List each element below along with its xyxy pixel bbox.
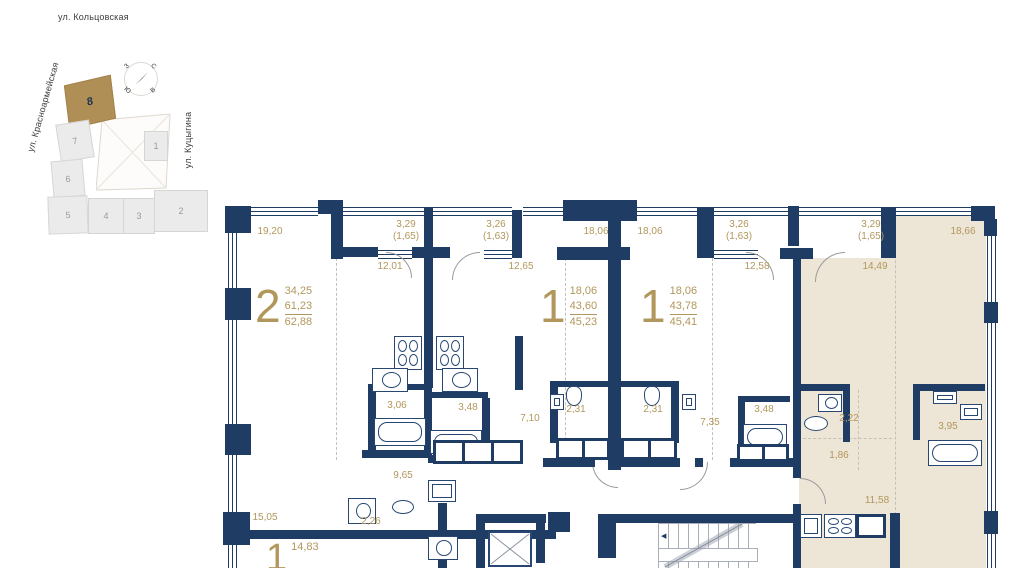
room-area-label: 3,48 [754, 404, 773, 415]
area-total: 62,88 [285, 315, 313, 330]
window [433, 207, 512, 216]
washer-icon [372, 368, 408, 392]
wall [984, 219, 997, 236]
area-main: 61,23 [285, 299, 313, 315]
zone-divider-line [565, 258, 566, 460]
room-area-label: 3,26 [729, 219, 748, 230]
window [251, 207, 318, 216]
rooms-count: 1 [540, 282, 566, 330]
wall [476, 514, 485, 568]
sink-icon [933, 391, 957, 404]
window [714, 207, 788, 216]
sink-icon [550, 394, 564, 410]
wall [697, 207, 714, 258]
sink-icon [428, 480, 456, 502]
window [987, 534, 996, 568]
room-area-label: 7,35 [700, 417, 719, 428]
sink-icon [960, 404, 982, 420]
wall [671, 383, 679, 443]
room-area-label: 7,10 [520, 413, 539, 424]
room-area-label: (1,65) [393, 231, 419, 242]
washer-icon [818, 394, 842, 412]
window [987, 323, 996, 511]
area-living: 18,06 [570, 284, 598, 299]
rooms-count: 2 [255, 282, 281, 330]
wall [362, 450, 430, 458]
cabinet-row [737, 444, 789, 462]
toilet-icon [644, 386, 660, 406]
window [228, 320, 237, 424]
room-area-label: 2,22 [839, 413, 858, 424]
stove-icon [436, 336, 464, 370]
room-area-label: 3,95 [938, 421, 957, 432]
cabinet-row [621, 438, 677, 460]
window [637, 207, 697, 216]
sink-icon [800, 514, 822, 538]
washer-icon [442, 368, 478, 392]
room-area-label: 9,65 [393, 470, 412, 481]
rooms-count: 1 [640, 282, 666, 330]
stair-direction-arrow: ◀ [661, 532, 666, 540]
wall [424, 207, 433, 258]
window [896, 207, 971, 216]
toilet-icon [566, 386, 582, 406]
window [228, 455, 237, 512]
wall [225, 288, 251, 320]
wall [608, 221, 621, 470]
wall [225, 206, 251, 233]
area-total: 45,41 [670, 315, 698, 330]
wall [512, 210, 522, 258]
toilet-icon [804, 416, 828, 431]
toilet-icon [392, 500, 414, 514]
zone-divider-line [858, 390, 859, 470]
door-swing [452, 252, 480, 280]
wall [338, 247, 378, 257]
wall [984, 511, 998, 534]
window [228, 545, 237, 568]
cabinet-row [556, 438, 610, 460]
window [228, 233, 237, 288]
room-area-label: 11,58 [865, 495, 889, 506]
room-area-label: 18,66 [950, 226, 975, 237]
room-area-label: 3,29 [861, 219, 880, 230]
room-area-label: 12,58 [744, 261, 769, 272]
wall [424, 258, 433, 388]
wall [793, 258, 801, 478]
area-main: 43,60 [570, 299, 598, 315]
apartment-badge-2room[interactable]: 2 34,25 61,23 62,88 [255, 282, 312, 330]
wall [913, 384, 985, 391]
wall [890, 513, 900, 568]
bathtub-icon [374, 418, 426, 446]
wall [223, 512, 250, 545]
room-area-label: 2,26 [361, 516, 380, 527]
room-area-label: 15,05 [252, 512, 277, 523]
door-swing [815, 252, 845, 282]
cabinet-row [856, 514, 886, 538]
wall [788, 206, 799, 246]
wall [515, 336, 523, 390]
zone-divider-line [895, 215, 896, 515]
wall [738, 396, 790, 402]
room-area-label: 3,48 [458, 402, 477, 413]
room-area-label: 2,31 [643, 404, 662, 415]
wall [563, 200, 637, 221]
area-total: 45,23 [570, 315, 598, 330]
room-area-label: 3,26 [486, 219, 505, 230]
area-living: 14,83 [291, 540, 319, 555]
window [484, 250, 512, 259]
window [987, 236, 996, 302]
area-living: 18,06 [670, 284, 698, 299]
sink-icon [682, 394, 696, 410]
elevator-car [488, 531, 532, 567]
area-living: 34,25 [285, 284, 313, 299]
stove-icon [824, 514, 856, 538]
room-area-label: (1,63) [483, 231, 509, 242]
window [799, 207, 881, 216]
room-area-label: 3,29 [396, 219, 415, 230]
wall [913, 384, 920, 440]
apartment-badge-bottom[interactable]: 1 14,83 [266, 538, 319, 568]
rooms-count: 1 [266, 538, 287, 568]
room-area-label: 12,65 [508, 261, 533, 272]
room-area-label: 1,86 [829, 450, 848, 461]
window [343, 207, 424, 216]
room-area-label: 18,06 [583, 226, 608, 237]
door-swing [680, 462, 708, 490]
room-area-label: 19,20 [257, 226, 282, 237]
apartment-badge-1room-a[interactable]: 1 18,06 43,60 45,23 [540, 282, 597, 330]
stair-run-line [620, 523, 796, 568]
wall [616, 514, 796, 523]
zone-divider-line [712, 258, 713, 460]
wall [550, 383, 558, 443]
wall [536, 514, 545, 563]
wall [550, 381, 608, 387]
wall [428, 392, 488, 398]
zone-divider-line [336, 258, 337, 460]
cabinet-row [433, 440, 523, 464]
room-area-label: (1,65) [858, 231, 884, 242]
room-area-label: 3,06 [387, 400, 406, 411]
wall [225, 424, 251, 455]
wall [548, 512, 570, 532]
washer-icon [428, 536, 458, 560]
window [523, 207, 563, 216]
room-area-label: 2,31 [566, 404, 585, 415]
floorplan-page: ул. Кольцовская ул. Красноармейская ул. … [0, 0, 1024, 568]
bathtub-icon [928, 440, 982, 466]
apartment-badge-1room-b[interactable]: 1 18,06 43,78 45,41 [640, 282, 697, 330]
stove-icon [394, 336, 422, 370]
room-area-label: 12,01 [377, 261, 402, 272]
area-main: 43,78 [670, 299, 698, 315]
room-area-label: 18,06 [637, 226, 662, 237]
wall [695, 458, 703, 467]
floor-plan: ◀ 2 34,25 61,23 62,88 1 18,06 43,60 45,2… [0, 0, 1024, 568]
wall [984, 302, 998, 323]
room-area-label: 14,49 [862, 261, 887, 272]
room-area-label: (1,63) [726, 231, 752, 242]
wall [598, 514, 616, 558]
